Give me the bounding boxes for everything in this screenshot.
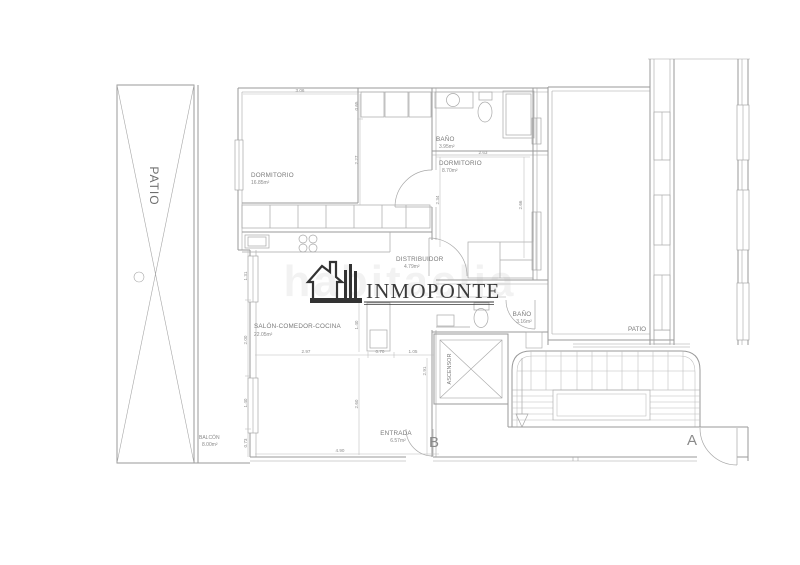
elevator: ASCENSOR — [434, 334, 508, 404]
bathroom-2-fixtures — [436, 303, 489, 328]
logo-text: INMOPONTE — [366, 279, 500, 303]
room-label-balcon: BALCÓN — [199, 434, 220, 441]
room-area-distribuidor: 4.79m² — [404, 264, 420, 270]
dimension-text: 0.73 — [243, 438, 248, 447]
doors — [395, 170, 737, 465]
dimension-text: 2.91 — [422, 366, 427, 375]
dimension-text: 2.27 — [354, 155, 359, 164]
dimension-text: 0.65 — [354, 101, 359, 110]
dimension-text: 2.66 — [518, 200, 523, 209]
dimension-text: 2.00 — [243, 335, 248, 344]
room-area-salon: 22.05m² — [254, 332, 273, 338]
bathroom-1-fixtures — [435, 91, 534, 138]
room-label-dormitorio-1: DORMITORIO — [251, 172, 294, 179]
right-facade — [648, 59, 750, 345]
door-arc-portal-a — [700, 428, 737, 465]
floor-plan-drawing: habitaclia PATIO BALCÓN 8.00m² — [0, 0, 800, 565]
room-area-entrada: 6.57m² — [390, 438, 406, 444]
stair-treads — [512, 351, 700, 420]
door-markers: B A — [429, 432, 697, 451]
kitchen-sink-icon — [245, 235, 269, 248]
marker-door-b: B — [429, 434, 439, 451]
patio-drain-icon — [134, 272, 144, 282]
window-icon — [235, 140, 243, 190]
room-label-patio-right: PATIO — [628, 326, 646, 333]
stairs — [508, 351, 700, 427]
appliance-row — [361, 92, 431, 117]
wardrobe-dormitorio-1 — [242, 205, 432, 232]
toilet-icon — [478, 92, 492, 122]
dimension-text: 3.06 — [296, 88, 305, 93]
patio-cross-lines — [117, 85, 194, 463]
room-area-dormitorio-1: 16.85m² — [251, 180, 270, 186]
marker-door-a: A — [687, 432, 697, 449]
balcony: BALCÓN 8.00m² — [117, 434, 250, 463]
window-icon — [654, 275, 670, 330]
floor-plan-canvas: habitaclia PATIO BALCÓN 8.00m² — [0, 0, 800, 565]
window-icon — [737, 105, 749, 160]
window-icon — [737, 190, 749, 250]
washbasin-icon — [436, 315, 470, 327]
room-area-bano-1: 3.95m² — [439, 144, 455, 150]
toilet-icon — [474, 303, 489, 328]
room-label-dormitorio-2: DORMITORIO — [439, 160, 482, 167]
window-icon — [654, 112, 670, 160]
window-icon — [248, 256, 258, 302]
room-area-bano-2: 3.16m² — [516, 319, 532, 325]
dimension-text: 1.40 — [243, 398, 248, 407]
room-label-patio-left: PATIO — [147, 166, 161, 205]
dimension-text: 1.05 — [409, 349, 418, 354]
room-area-balcon: 8.00m² — [202, 442, 218, 448]
door-arc-dormitorio-2 — [395, 170, 432, 207]
window-icon — [654, 195, 670, 245]
dimension-text: 1.40 — [354, 320, 359, 329]
dimension-text: 1.31 — [243, 271, 248, 280]
room-label-bano-2: BAÑO — [513, 309, 532, 318]
dimension-text: 2.63 — [479, 150, 488, 155]
room-area-dormitorio-2: 8.70m² — [442, 168, 458, 174]
stair-direction-arrow-icon — [516, 358, 528, 427]
shower-icon — [503, 91, 534, 138]
fridge-unit — [367, 303, 390, 351]
dimension-text: 0.70 — [376, 349, 385, 354]
window-icon — [737, 283, 749, 340]
patio-left: PATIO — [117, 85, 198, 463]
dimension-text: 2.34 — [435, 195, 440, 204]
room-label-distribuidor: DISTRIBUIDOR — [396, 256, 444, 263]
hob-burners-icon — [299, 235, 317, 252]
window-icon — [248, 378, 258, 433]
washbasin-icon — [435, 92, 473, 108]
room-label-salon: SALÓN-COMEDOR-COCINA — [254, 321, 342, 330]
room-label-ascensor: ASCENSOR — [447, 354, 453, 385]
room-label-bano-1: BAÑO — [436, 134, 455, 143]
dimension-text: 2.97 — [302, 349, 311, 354]
dimension-text: 4.90 — [336, 448, 345, 453]
dimension-text: 2.60 — [354, 399, 359, 408]
room-label-entrada: ENTRADA — [380, 430, 412, 437]
